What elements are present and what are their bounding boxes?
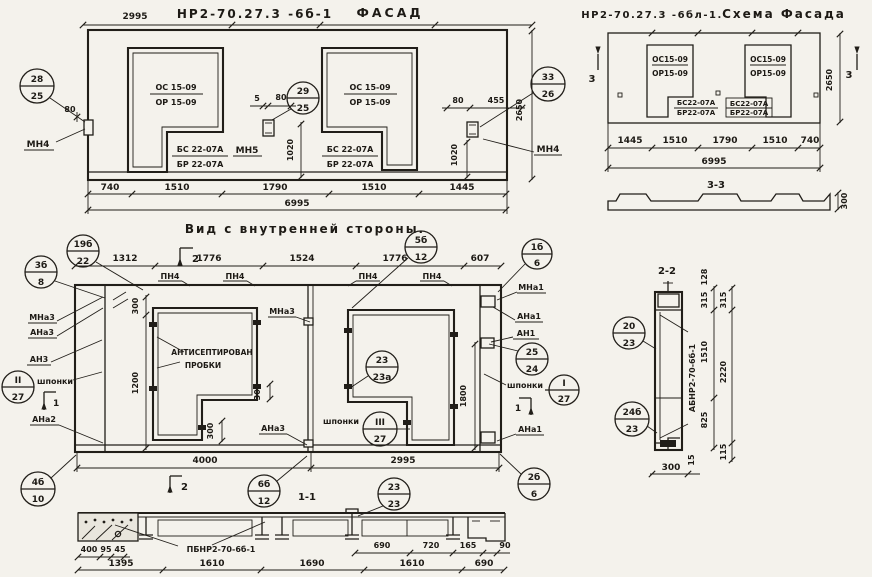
dim-label: 1524 [289,254,314,264]
dim-label: 300 [662,463,681,473]
anchor-mn4-left [84,120,93,135]
dim-label: 1200 [131,371,140,394]
anchor-label: АН3 [30,355,48,364]
dim-label: 1510 [164,183,189,193]
anchor-label: АН1 [517,329,536,338]
callout-20-23: 20 23 [613,317,656,349]
section-11-end-block [78,513,138,541]
shponki-label: шпонки [37,377,73,386]
dim-label: 400 [81,545,98,554]
dim-label: 455 [488,96,505,105]
anchor-label: АНа3 [30,328,54,337]
dim-label: 825 [700,411,709,428]
callout-2b-6: 2б 6 [500,454,550,500]
dim-label: 2220 [719,360,728,383]
dim-label: 128 [700,268,709,285]
pn4-label: ПН4 [423,272,442,281]
dim-label: 1790 [262,183,287,193]
section-22-outline [655,292,682,450]
anchor-label: АНа3 [261,424,285,433]
dim-label: 5 [254,94,260,103]
dim-label: 720 [423,541,440,550]
callout-bottom: 6 [531,490,537,500]
inner-title: Вид с внутренней стороны. [185,222,425,236]
section-mark-3-right: 3 [846,47,860,82]
callout-bottom: 12 [415,253,428,263]
callout-bottom: 12 [258,497,271,507]
anchor-label: МН4 [537,145,560,155]
dim-label: 6995 [284,199,309,209]
callout-28-25: 28 25 [20,69,54,103]
section-mark-label: 3 [589,74,596,85]
callout-top: 23 [388,483,401,493]
callout-4b-10: 4б 10 [21,455,76,506]
dim-label: 1395 [108,559,133,569]
section-11-rib [255,517,269,539]
dim-label: 6995 [701,157,726,167]
dim-label: 2650 [825,68,834,91]
dim-label: 607 [471,254,490,264]
section-22-view: 2-2 АБНР2-70-6б-1 128 315 1510 825 315 2… [613,266,735,477]
section-mark-label: 1 [53,399,59,409]
dim-label: 300 [253,383,262,400]
opening-label: ОС 15-09 [155,83,196,92]
part-label: ПБНР2-70-6б-1 [187,544,256,554]
opening-label: ОС15-09 [652,55,688,64]
callout-bottom: 23 [388,500,401,510]
callout-top: 5б [415,235,428,246]
scheme-title-code: НР2-70.27.3 -6бл-1. [581,9,723,21]
blueprint-sheet: НР2-70.27.3 -6б-1 ФАСАД 2995 ОС 15-09 ОР… [0,0,872,577]
dim-label: 1510 [762,136,787,146]
dim-label: 1445 [617,136,642,146]
pn4-label: ПН4 [161,272,180,281]
drawing-canvas: НР2-70.27.3 -6б-1 ФАСАД 2995 ОС 15-09 ОР… [0,0,872,577]
anchor-label: МНа3 [269,307,295,316]
dim-label: 1776 [196,254,221,264]
part-label: АБНР2-70-6б-1 [687,343,697,412]
inner-view: Вид с внутренней стороны. 1312 1776 1524… [2,222,579,507]
dim-label: 1510 [700,340,709,363]
facade-title: ФАСАД [356,5,423,20]
dim-label: 165 [460,541,477,550]
dim-label: 115 [719,443,728,460]
dim-label: 2995 [390,456,415,466]
dim-label: 1610 [399,559,424,569]
shponki-label: шпонки [507,381,543,390]
insert-label: БР22-07А [730,109,769,117]
callout-bottom: 22 [77,257,90,267]
dim-label: 15 [687,454,696,466]
callout-top: 33 [542,73,555,83]
dim-label: 1020 [286,138,295,161]
section-mark-label: 2 [192,254,199,265]
insert-label: БС 22-07А [177,145,224,154]
callout-top: 23 [376,356,389,366]
callout-bottom: 26 [542,90,555,100]
callout-25-24: 25 24 [489,343,548,375]
inner-window-1 [153,308,257,440]
dim-label: 45 [114,545,126,554]
opening-label: ОР 15-09 [349,98,390,107]
insert-label: БР22-07А [677,109,716,117]
pn4-label: ПН4 [359,272,378,281]
callout-top: 2б [528,472,541,483]
callout-bottom: 23 [623,339,636,349]
callout-bottom: 8 [38,278,44,288]
dim-label: 315 [719,291,728,308]
dim-label: 2650 [515,98,524,121]
callout-top: III [375,418,385,428]
callout-I-27: I 27 [545,375,579,405]
dim-label: 1312 [112,254,137,264]
dim-label: 315 [700,291,709,308]
anchor-label: АНа1 [517,312,541,321]
dim-label: 90 [499,541,511,550]
pn4-label: ПН4 [226,272,245,281]
callout-24b-23: 24б 23 [615,402,657,436]
anchor-label: АНа1 [518,425,542,434]
section-mark-3-left: 3 [589,47,601,86]
section-mark-1-right: 1 [515,398,534,415]
opening-label: ОР15-09 [750,69,786,78]
section-22-label: 2-2 [658,266,676,277]
section-11-rib [275,517,289,539]
insert-label: БР 22-07А [177,160,224,169]
callout-23-23: 23 23 [358,478,410,516]
scheme-title: Схема Фасада [722,7,846,21]
dim-label: 300 [131,297,140,314]
dim-label: 80 [452,96,464,105]
section-mark-label: 1 [515,404,521,414]
dim-label: 80 [64,105,76,114]
section-mark-2-top: 2 [177,248,199,266]
section-11-label: 1-1 [298,492,316,503]
dim-label: 300 [840,192,849,209]
dim-label: 690 [475,559,494,569]
facade-view: НР2-70.27.3 -6б-1 ФАСАД 2995 ОС 15-09 ОР… [20,5,565,214]
callout-bottom: 25 [297,104,310,114]
facade-title-code: НР2-70.27.3 -6б-1 [177,7,333,21]
callout-bottom: 6 [534,259,540,269]
dim-label: 1610 [199,559,224,569]
callout-top: 19б [74,239,93,250]
anchor-label: МН5 [236,146,259,156]
callout-3b-8: 3б 8 [25,256,105,298]
dim-label: 1790 [712,136,737,146]
section-mark-label: 3 [846,70,853,81]
insert-label: БС22-07А [730,100,769,108]
callout-top: 4б [32,477,45,488]
callout-bottom: 27 [558,395,571,405]
callout-23-23a: 23 23а [350,351,398,388]
callout-33-26: 33 26 [531,67,565,101]
dim-label: 1510 [361,183,386,193]
shponki-label: шпонки [323,417,359,426]
dim-label: 2995 [122,12,147,22]
dim-label: 4000 [192,456,217,466]
dim-label: 1776 [382,254,407,264]
insert-label: БР 22-07А [327,160,374,169]
opening-label: ОР15-09 [652,69,688,78]
section-33-profile [608,194,830,210]
insert-label: БС22-07А [677,99,716,107]
section-mark-label: 2 [181,482,188,493]
note-label: ПРОБКИ [185,361,221,370]
opening-label: ОС15-09 [750,55,786,64]
callout-III-27: III 27 [363,412,410,446]
callout-top: 24б [623,407,642,418]
callout-top: 20 [623,322,636,332]
callout-top: I [562,379,565,389]
section-mark-1-left: 1 [41,392,59,410]
section-11-view: 1-1 23 23 ПБНР2-70-6б-1 400 95 45 690 72… [75,478,511,573]
callout-bottom: 23 [626,425,639,435]
callout-29-25: 29 25 [287,82,319,114]
dim-label: 1800 [459,384,468,407]
callout-II-27: II 27 [2,371,34,403]
callout-top: 25 [526,348,539,358]
dim-label: 1445 [449,183,474,193]
opening-label: ОР 15-09 [155,98,196,107]
pn4-labels: ПН4 ПН4 ПН4 ПН4 [158,272,452,286]
anchor-mn4-right [467,122,478,137]
callout-5b-12: 5б 12 [352,231,437,308]
note-label: АНТИСЕПТИРОВАН [171,348,252,357]
dim-label: 80 [275,93,287,102]
anchor-label: МНа3 [29,313,55,322]
callout-top: 29 [297,87,310,97]
section-33-label: 3-3 [707,180,725,191]
callout-top: 1б [531,242,544,253]
anchor-label: МНа1 [518,283,544,292]
dim-label: 1510 [662,136,687,146]
callout-bottom: 23а [373,373,392,383]
callout-bottom: 27 [12,393,25,403]
anchor-label: АНа2 [32,415,56,424]
dim-label: 1020 [450,143,459,166]
anchor-label: МН4 [27,140,50,150]
insert-label: БС 22-07А [327,145,374,154]
callout-bottom: 25 [31,92,44,102]
dim-label: 690 [374,541,391,550]
dim-label: 300 [206,422,215,439]
facade-scheme-view: НР2-70.27.3 -6бл-1. Схема Фасада ОС15-09… [581,7,859,212]
dim-label: 95 [100,545,112,554]
dim-label: 740 [101,183,120,193]
callout-bottom: 24 [526,365,539,375]
anchor-mn5 [263,120,274,136]
section-mark-2-bottom: 2 [167,476,188,493]
opening-label: ОС 15-09 [349,83,390,92]
callout-bottom: 27 [374,435,387,445]
callout-bottom: 10 [32,495,45,505]
dim-label: 740 [801,136,820,146]
callout-top: 6б [258,479,271,490]
callout-top: 3б [35,260,48,271]
dim-label: 1690 [299,559,324,569]
callout-top: 28 [31,75,44,85]
callout-top: II [15,376,22,386]
